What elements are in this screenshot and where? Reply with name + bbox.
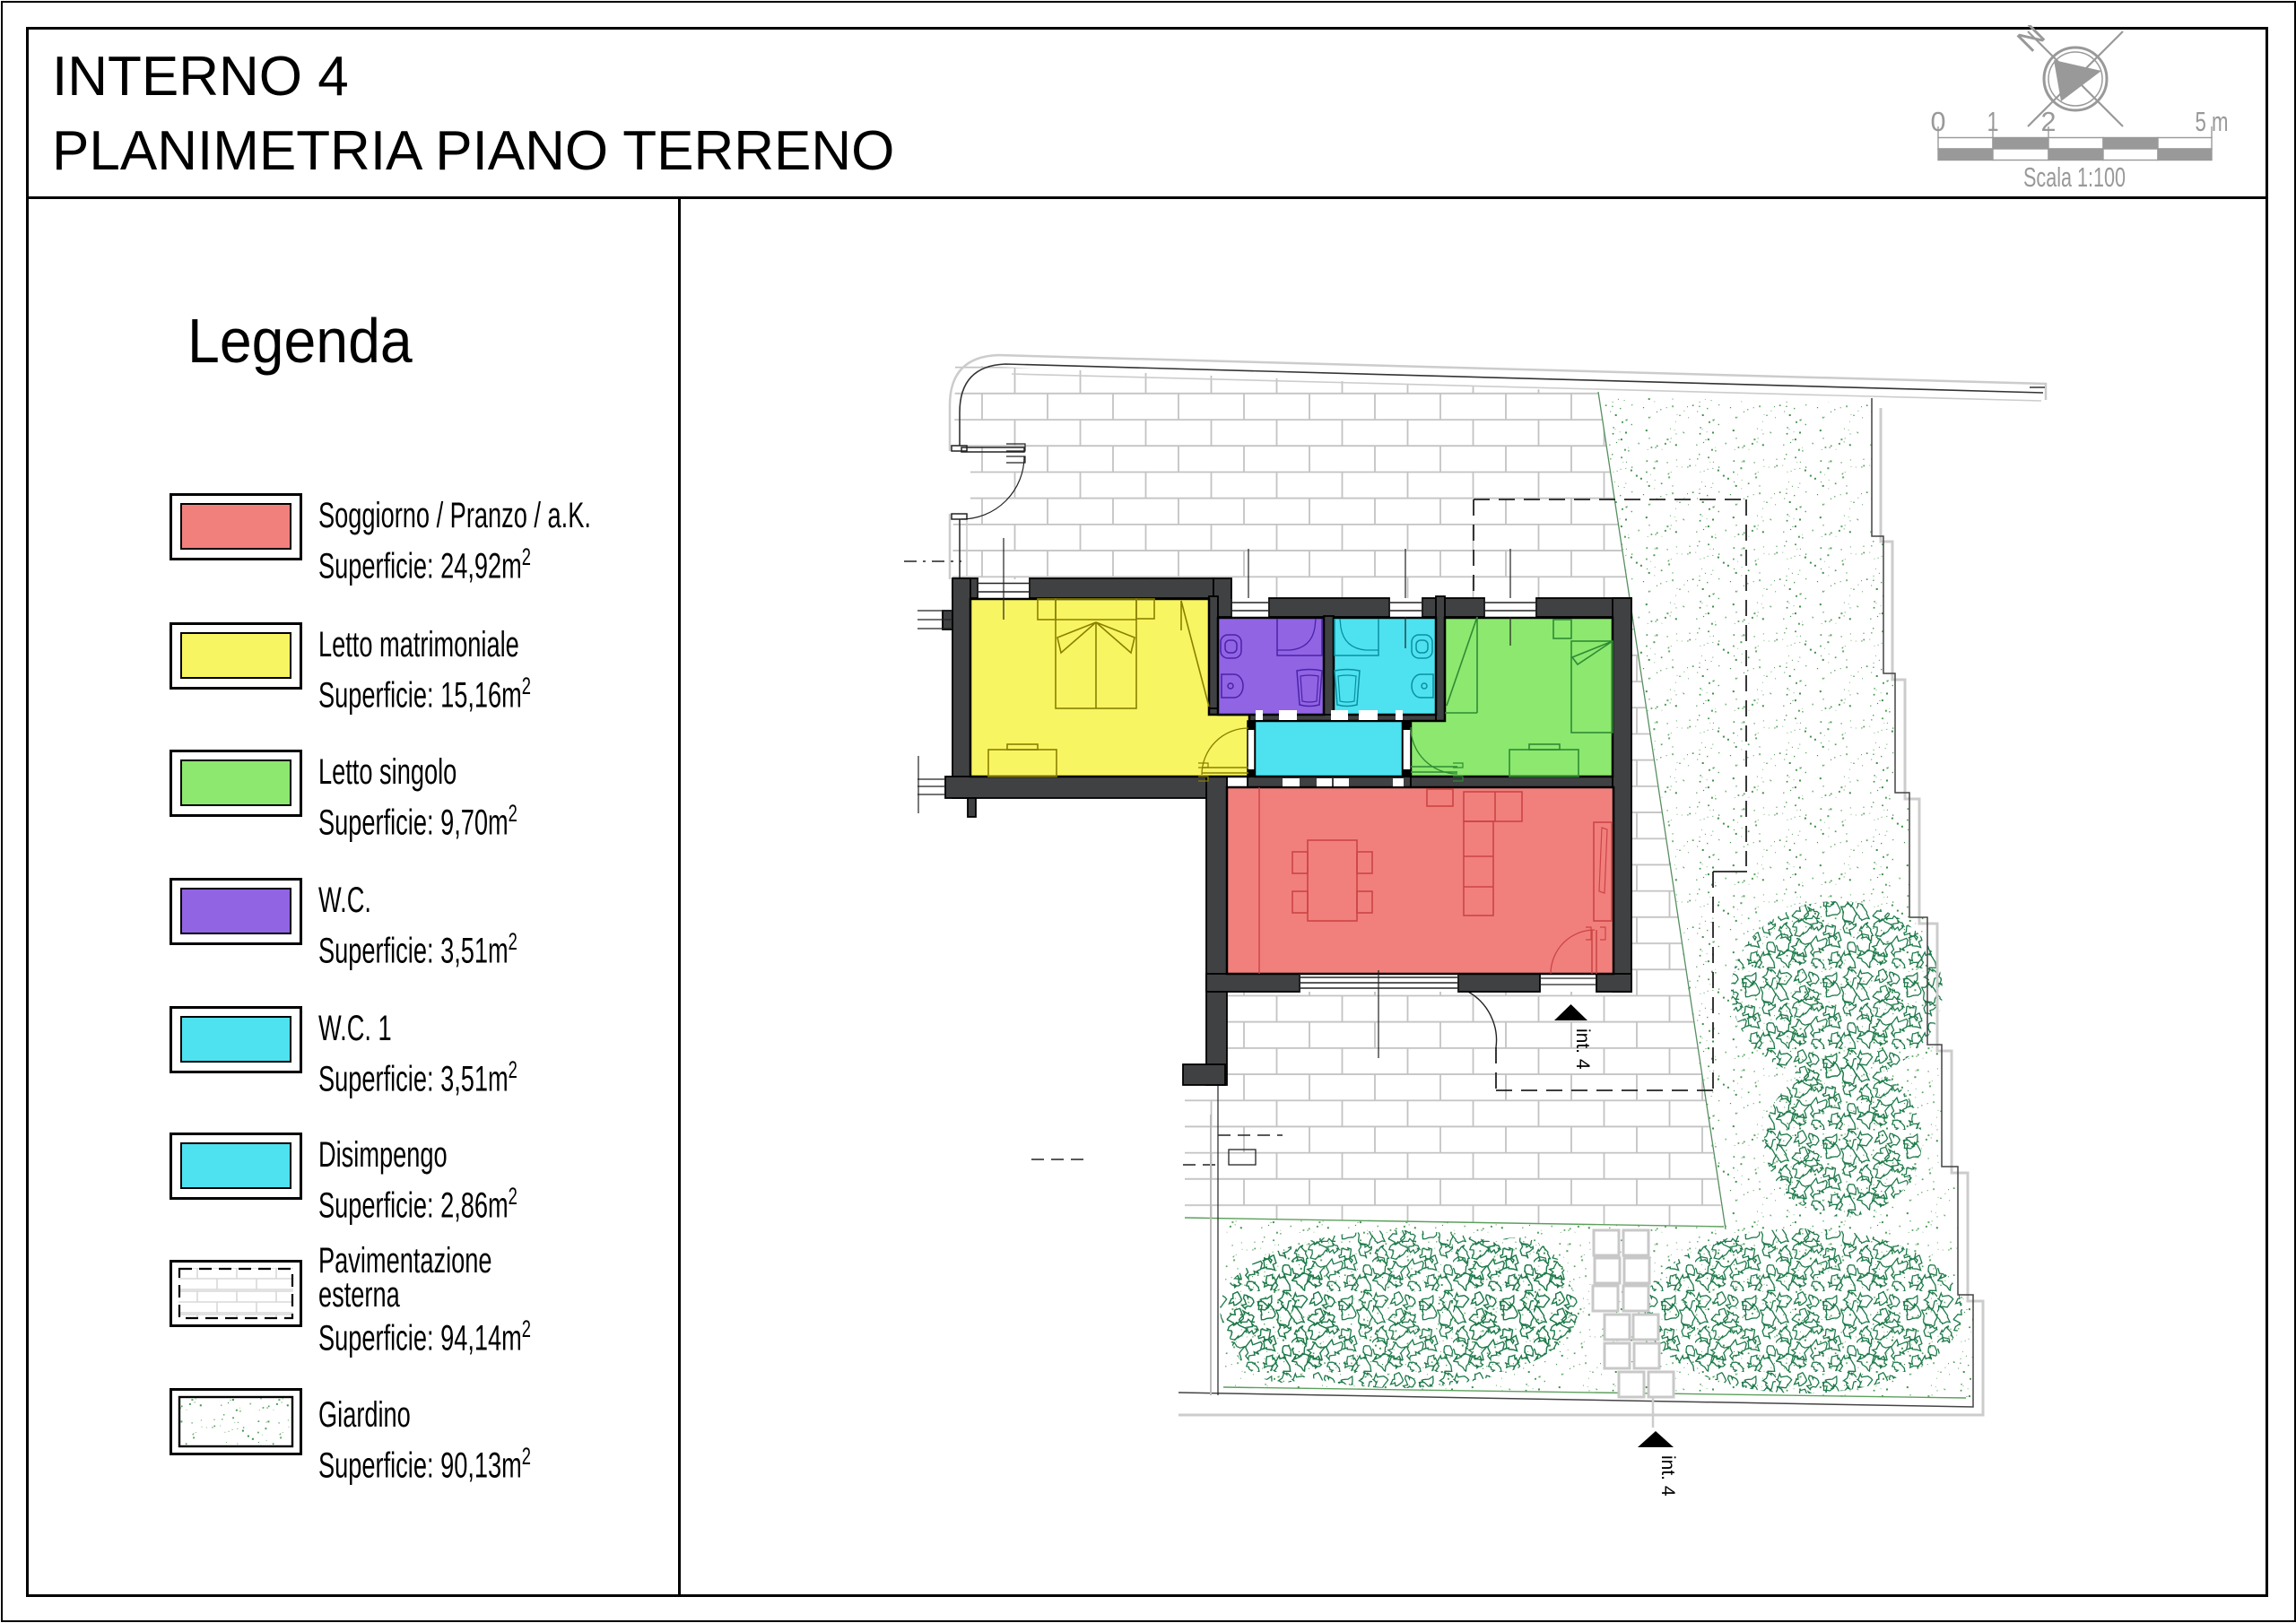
svg-text:int. 4: int. 4 xyxy=(1572,1028,1593,1070)
svg-text:int. 4: int. 4 xyxy=(1657,1455,1678,1497)
